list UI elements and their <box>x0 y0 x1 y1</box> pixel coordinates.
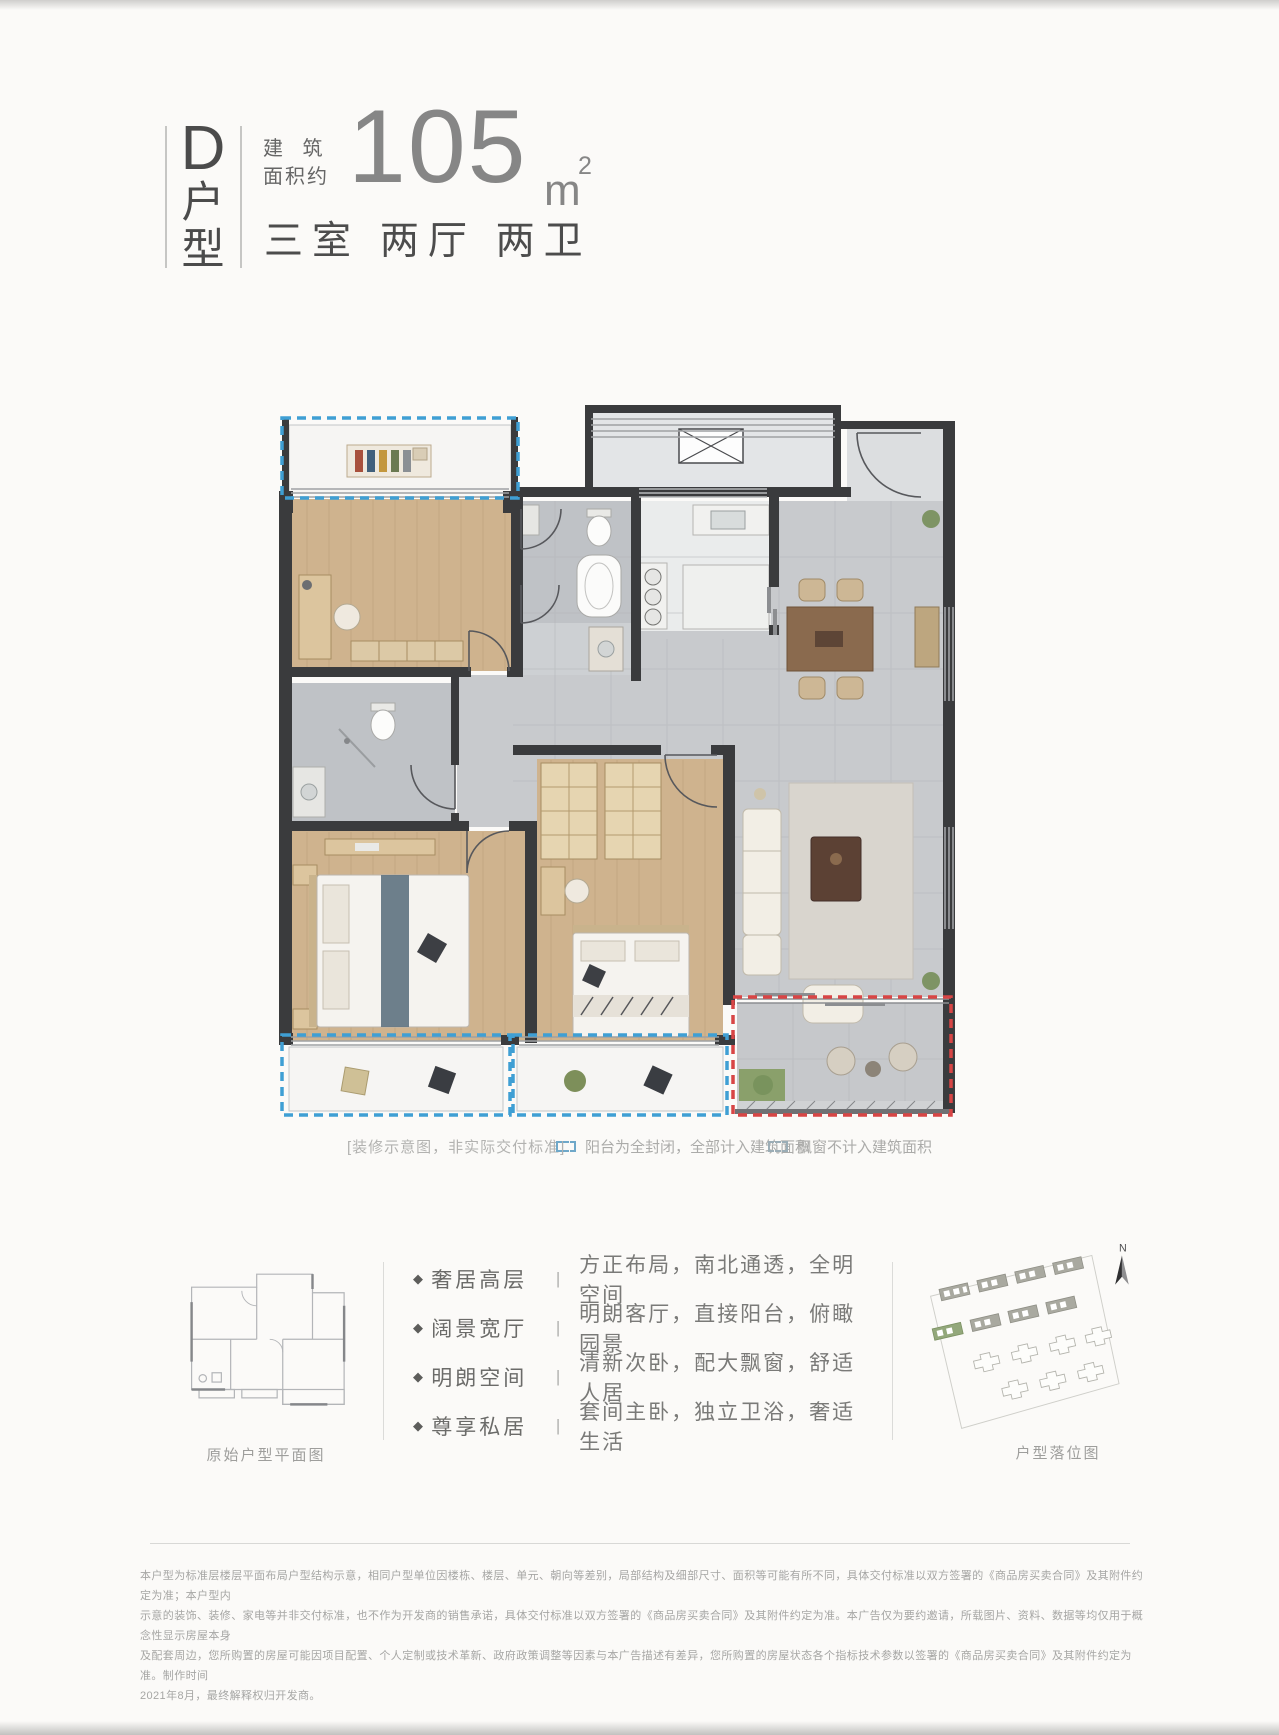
footer-divider <box>150 1543 1130 1544</box>
diamond-bullet-icon: ◆ <box>413 1418 431 1434</box>
area-superscript: 2 <box>578 152 592 181</box>
disclaimer-line: 2021年8月，最终解释权归开发商。 <box>140 1686 1144 1706</box>
photo-edge-top <box>0 0 1279 10</box>
area-value: 105 <box>348 92 528 202</box>
legend: [装修示意图，非实际交付标准] 阳台为全封闭，全部计入建筑面积 飘窗不计入建筑面… <box>0 1136 1279 1160</box>
unit-type-char-1: 户 <box>170 180 236 227</box>
feature-row: ◆ 明朗空间 | 清新次卧，配大飘窗，舒适人居 <box>413 1366 873 1388</box>
feature-separator: | <box>537 1367 579 1387</box>
feature-row: ◆ 尊享私居 | 套间主卧，独立卫浴，奢适生活 <box>413 1415 873 1437</box>
original-plan-label: 原始户型平面图 <box>168 1444 364 1465</box>
feature-title: 尊享私居 <box>431 1411 537 1441</box>
site-plan-svg: N <box>898 1236 1138 1440</box>
site-plan-label: 户型落位图 <box>978 1442 1138 1463</box>
site-buildings <box>924 1254 1120 1413</box>
disclaimer: 本户型为标准层楼层平面布局户型结构示意，相同户型单位因楼栋、楼层、单元、朝向等差… <box>140 1566 1144 1706</box>
legend-item-baywindow: 飘窗不计入建筑面积 <box>768 1136 932 1157</box>
feature-row: ◆ 奢居高层 | 方正布局，南北通透，全明空间 <box>413 1268 873 1290</box>
unit-type-char-2: 型 <box>170 227 236 274</box>
feature-list: ◆ 奢居高层 | 方正布局，南北通透，全明空间 ◆ 阔景宽厅 | 明朗客厅，直接… <box>413 1268 873 1464</box>
balcony-dash-icon <box>556 1141 576 1152</box>
photo-edge-bottom <box>0 1721 1279 1735</box>
north-label: N <box>1119 1243 1127 1255</box>
feature-title: 阔景宽厅 <box>431 1313 537 1343</box>
baywindow-dash-icon <box>768 1141 788 1152</box>
unit-type-block: D 户 型 <box>170 118 236 274</box>
feature-row: ◆ 阔景宽厅 | 明朗客厅，直接阳台，俯瞰园景 <box>413 1317 873 1339</box>
feature-title: 奢居高层 <box>431 1264 537 1294</box>
original-plan-thumbnail <box>168 1250 364 1436</box>
site-plan-thumbnail: N <box>898 1236 1138 1440</box>
feature-separator: | <box>537 1269 579 1289</box>
area-label-line1: 建 筑 <box>263 136 330 163</box>
floor-plan-svg <box>255 368 955 1120</box>
legend-label: 飘窗不计入建筑面积 <box>797 1136 932 1157</box>
feature-title: 明朗空间 <box>431 1362 537 1392</box>
floorplan-poster: D 户 型 建 筑 面积约 105 m 2 三室 两厅 两卫 <box>0 0 1279 1735</box>
divider-left <box>383 1262 384 1440</box>
header-divider-right <box>240 126 242 268</box>
feature-separator: | <box>537 1416 579 1436</box>
diamond-bullet-icon: ◆ <box>413 1271 431 1287</box>
decor-note: [装修示意图，非实际交付标准] <box>347 1136 565 1157</box>
original-plan-svg <box>168 1250 364 1436</box>
header-divider-left <box>165 126 167 268</box>
disclaimer-line: 及配套周边，您所购置的房屋可能因项目配置、个人定制或技术革新、政府政策调整等因素… <box>140 1646 1144 1686</box>
rooms-summary: 三室 两厅 两卫 <box>264 210 592 266</box>
area-label-line2: 面积约 <box>263 164 329 191</box>
shaft-box <box>679 429 743 463</box>
floor-plan <box>255 368 955 1120</box>
diamond-bullet-icon: ◆ <box>413 1369 431 1385</box>
feature-desc: 套间主卧，独立卫浴，奢适生活 <box>579 1396 873 1456</box>
divider-right <box>892 1262 893 1440</box>
diamond-bullet-icon: ◆ <box>413 1320 431 1336</box>
disclaimer-line: 示意的装饰、装修、家电等并非交付标准，也不作为开发商的销售承诺，具体交付标准以双… <box>140 1606 1144 1646</box>
unit-type-letter: D <box>170 118 236 180</box>
feature-separator: | <box>537 1318 579 1338</box>
north-arrow-icon: N <box>1115 1243 1129 1285</box>
area-unit: m <box>544 166 581 216</box>
disclaimer-line: 本户型为标准层楼层平面布局户型结构示意，相同户型单位因楼栋、楼层、单元、朝向等差… <box>140 1566 1144 1606</box>
